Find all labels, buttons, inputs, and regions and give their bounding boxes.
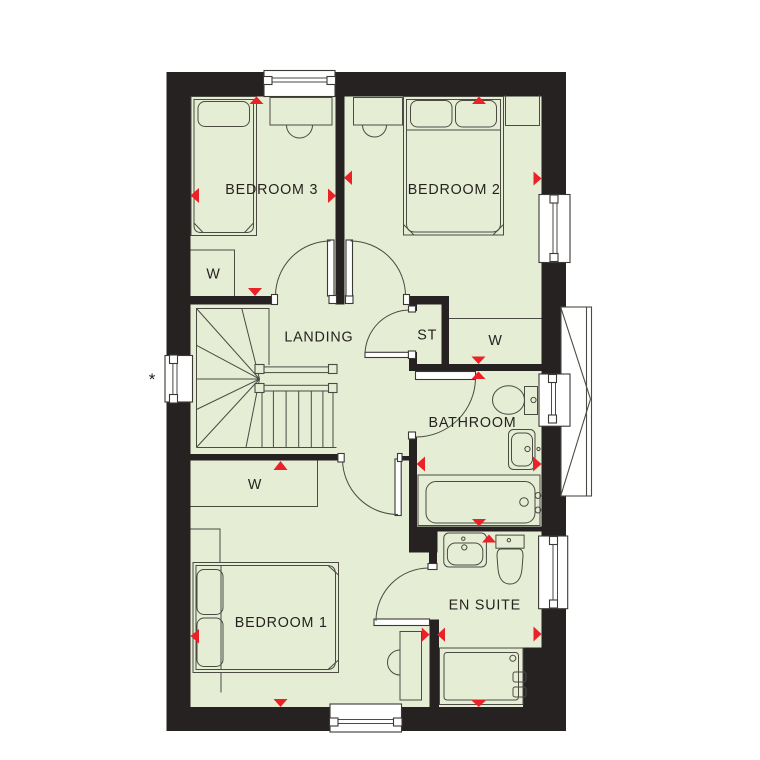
svg-text:ST: ST — [417, 327, 437, 343]
svg-text:*: * — [149, 370, 156, 389]
svg-text:EN SUITE: EN SUITE — [449, 598, 521, 614]
svg-text:BEDROOM 1: BEDROOM 1 — [235, 615, 328, 631]
svg-text:BATHROOM: BATHROOM — [429, 415, 517, 431]
svg-text:W: W — [488, 333, 502, 349]
svg-text:BEDROOM 3: BEDROOM 3 — [225, 182, 318, 198]
svg-text:W: W — [206, 267, 220, 283]
svg-text:BEDROOM 2: BEDROOM 2 — [408, 182, 501, 198]
svg-text:LANDING: LANDING — [284, 330, 353, 346]
svg-text:W: W — [248, 477, 262, 493]
